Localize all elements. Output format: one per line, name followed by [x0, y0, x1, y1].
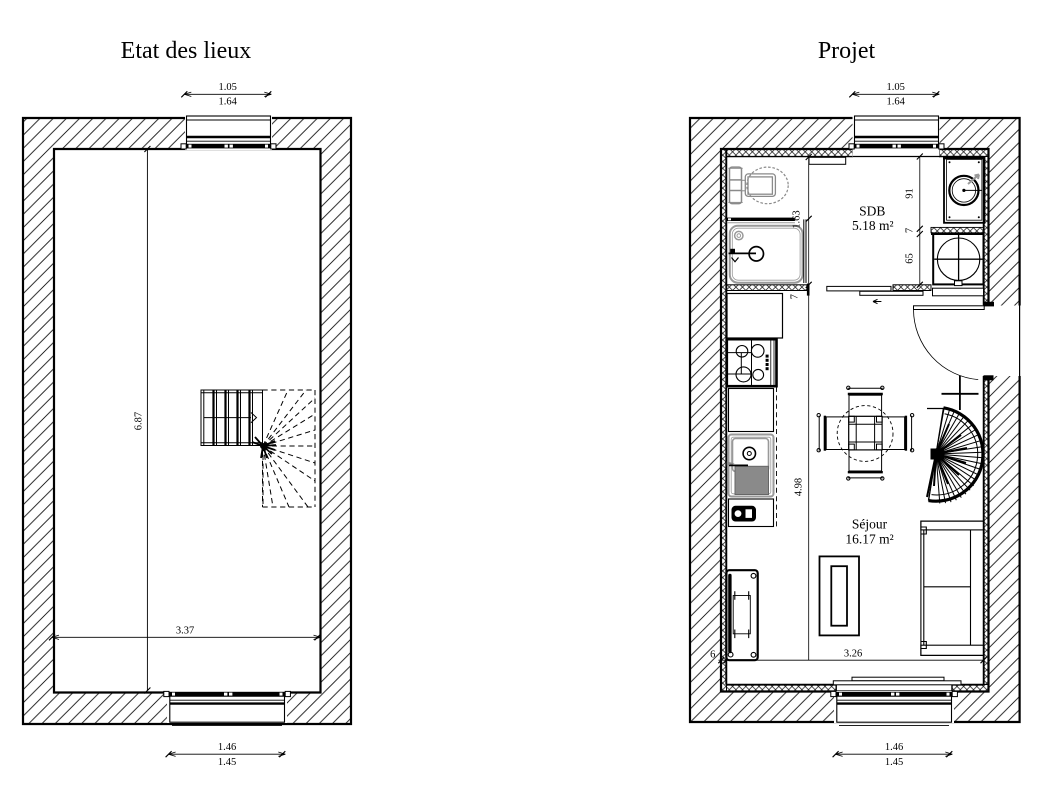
svg-text:1.05: 1.05: [219, 82, 237, 93]
svg-text:3.26: 3.26: [844, 649, 862, 660]
svg-text:1.63: 1.63: [792, 210, 803, 228]
svg-text:1.45: 1.45: [885, 757, 903, 768]
svg-text:Etat des lieux: Etat des lieux: [121, 38, 252, 64]
svg-text:SDB: SDB: [859, 204, 885, 219]
svg-text:16.17 m²: 16.17 m²: [845, 532, 893, 547]
svg-text:4.98: 4.98: [794, 478, 805, 496]
svg-text:1.46: 1.46: [885, 742, 903, 753]
svg-text:Projet: Projet: [818, 38, 876, 64]
svg-text:Séjour: Séjour: [852, 517, 888, 532]
svg-text:1.64: 1.64: [219, 97, 238, 108]
svg-text:7: 7: [904, 228, 915, 233]
svg-text:6.87: 6.87: [134, 412, 145, 430]
svg-text:1.64: 1.64: [887, 97, 906, 108]
svg-text:91: 91: [904, 188, 915, 199]
svg-text:1.45: 1.45: [218, 757, 236, 768]
svg-text:3.37: 3.37: [176, 626, 194, 637]
svg-text:6: 6: [710, 650, 715, 661]
svg-text:65: 65: [904, 253, 915, 264]
svg-text:7: 7: [790, 294, 801, 299]
svg-text:1.05: 1.05: [887, 82, 905, 93]
svg-text:1.46: 1.46: [218, 742, 236, 753]
svg-text:5.18 m²: 5.18 m²: [852, 218, 894, 233]
